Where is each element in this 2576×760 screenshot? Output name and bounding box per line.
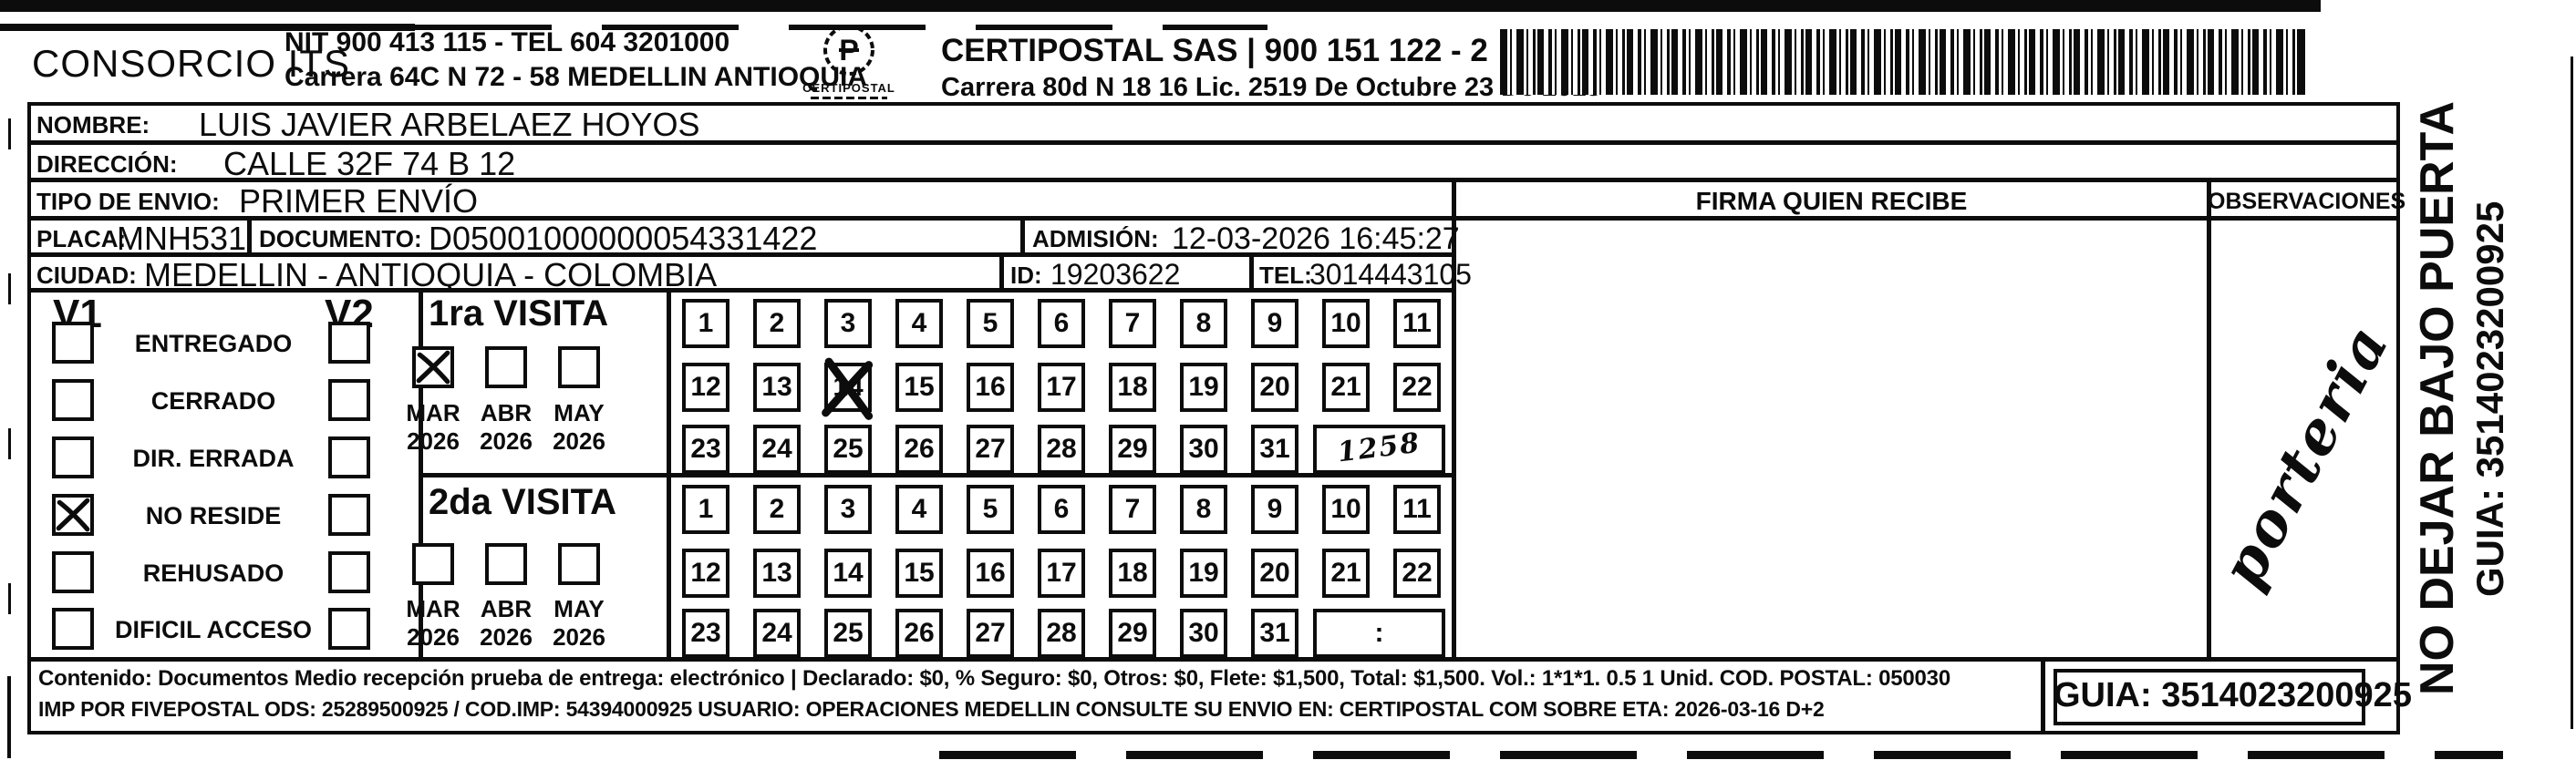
- status-option-label: DIFICIL ACCESO: [102, 616, 325, 644]
- calendar-day-box: 3: [824, 299, 872, 348]
- calendar-day-box: 24: [753, 425, 801, 474]
- visit-year-label: 2026: [396, 427, 471, 456]
- day-number: 20: [1259, 558, 1289, 589]
- day-number: 23: [690, 434, 720, 465]
- day-number: 1: [698, 494, 714, 525]
- calendar-day-box: 27: [967, 425, 1014, 474]
- status-checkbox-v1: [52, 551, 94, 593]
- status-checkbox-v2: [328, 436, 370, 478]
- day-number: 4: [912, 308, 927, 339]
- day-number: 5: [983, 308, 998, 339]
- day-number: 29: [1117, 618, 1147, 649]
- day-number: 11: [1402, 494, 1432, 525]
- day-number: 16: [975, 558, 1005, 589]
- calendar-day-box: 12: [682, 363, 729, 412]
- visit-year-label: 2026: [469, 623, 543, 652]
- day-number: 13: [761, 372, 791, 403]
- day-number: 9: [1267, 308, 1283, 339]
- calendar-day-box: 8: [1180, 485, 1227, 534]
- handwritten-x-icon: [54, 496, 92, 534]
- calendar-day-box: 13: [753, 363, 801, 412]
- day-number: 31: [1259, 434, 1289, 465]
- status-option-label: REHUSADO: [102, 560, 325, 588]
- calendar-day-box: 20: [1251, 363, 1298, 412]
- visit-title: 2da VISITA: [429, 482, 616, 523]
- day-number: 12: [690, 372, 720, 403]
- status-option-label: DIR. ERRADA: [102, 445, 325, 473]
- day-number: 3: [841, 494, 856, 525]
- visit-month-label: MAR: [396, 399, 471, 427]
- calendar-day-box: 16: [967, 549, 1014, 598]
- visit-month-label: ABR: [469, 399, 543, 427]
- day-number: 8: [1196, 494, 1212, 525]
- day-number: 29: [1117, 434, 1147, 465]
- calendar-day-box: 16: [967, 363, 1014, 412]
- day-number: 21: [1330, 558, 1360, 589]
- calendar-day-box: 1: [682, 485, 729, 534]
- day-number: 24: [761, 618, 791, 649]
- calendar-day-box: 29: [1109, 425, 1156, 474]
- visit-title: 1ra VISITA: [429, 293, 608, 334]
- calendar-day-box: 6: [1038, 485, 1085, 534]
- calendar-day-box: 4: [895, 485, 943, 534]
- day-number: 28: [1046, 434, 1076, 465]
- visit-month-label: MAY: [542, 399, 616, 427]
- visit-time-box: 1258: [1313, 425, 1445, 474]
- day-number: 24: [761, 434, 791, 465]
- calendar-day-box: 12: [682, 549, 729, 598]
- visit-month-checkbox: [485, 346, 527, 388]
- visit-month-checkbox: [485, 543, 527, 585]
- day-number: 12: [690, 558, 720, 589]
- day-number: 23: [690, 618, 720, 649]
- day-number: 26: [904, 434, 934, 465]
- status-checkbox-v2: [328, 322, 370, 364]
- visit-month-label: MAY: [542, 595, 616, 623]
- calendar-day-box: 6: [1038, 299, 1085, 348]
- calendar-day-box: 5: [967, 485, 1014, 534]
- calendar-day-box: 28: [1038, 609, 1085, 658]
- day-number: 9: [1267, 494, 1283, 525]
- calendar-day-box: 28: [1038, 425, 1085, 474]
- status-checkbox-v2: [328, 494, 370, 536]
- visit-year-label: 2026: [396, 623, 471, 652]
- day-number: 15: [904, 558, 934, 589]
- calendar-day-box: 11: [1393, 485, 1441, 534]
- handwritten-x-icon: [414, 348, 452, 386]
- day-number: 25: [833, 434, 863, 465]
- status-option-label: CERRADO: [102, 387, 325, 416]
- day-number: 27: [975, 434, 1005, 465]
- status-checkbox-v2: [328, 551, 370, 593]
- day-number: 17: [1046, 558, 1076, 589]
- calendar-day-box: 30: [1180, 609, 1227, 658]
- calendar-day-box: 18: [1109, 363, 1156, 412]
- status-option-label: ENTREGADO: [102, 330, 325, 358]
- day-number: 17: [1046, 372, 1076, 403]
- day-number: 28: [1046, 618, 1076, 649]
- day-number: 6: [1054, 494, 1070, 525]
- status-checkbox-v2: [328, 379, 370, 421]
- status-checkbox-v1: [52, 436, 94, 478]
- calendar-day-box: 3: [824, 485, 872, 534]
- day-number: 6: [1054, 308, 1070, 339]
- visit-year-label: 2026: [469, 427, 543, 456]
- calendar-day-box: 18: [1109, 549, 1156, 598]
- calendar-day-box: 13: [753, 549, 801, 598]
- calendar-day-box: 7: [1109, 299, 1156, 348]
- calendar-day-box: 15: [895, 549, 943, 598]
- day-number: 26: [904, 618, 934, 649]
- calendar-day-box: 26: [895, 609, 943, 658]
- day-number: 3: [841, 308, 856, 339]
- day-number: 22: [1402, 558, 1432, 589]
- visit-month-checkbox: [558, 543, 600, 585]
- visit-time-box: :: [1313, 609, 1445, 658]
- visit-month-checkbox: [412, 543, 454, 585]
- calendar-day-box: 10: [1322, 299, 1370, 348]
- visit-month-checkbox: [558, 346, 600, 388]
- status-checkbox-v2: [328, 608, 370, 650]
- calendar-day-box: 21: [1322, 363, 1370, 412]
- day-number: 18: [1117, 558, 1147, 589]
- day-number: 30: [1188, 618, 1218, 649]
- calendar-day-box: 25: [824, 609, 872, 658]
- day-number: 8: [1196, 308, 1212, 339]
- calendar-day-box: 14: [824, 549, 872, 598]
- day-number: 4: [912, 494, 927, 525]
- calendar-day-box: 19: [1180, 363, 1227, 412]
- day-number: 18: [1117, 372, 1147, 403]
- day-number: 31: [1259, 618, 1289, 649]
- calendar-day-box: 22: [1393, 363, 1441, 412]
- calendar-day-box: 19: [1180, 549, 1227, 598]
- visit-year-label: 2026: [542, 427, 616, 456]
- status-checkbox-v1: [52, 608, 94, 650]
- calendar-day-box: 23: [682, 425, 729, 474]
- day-number: 7: [1125, 494, 1141, 525]
- calendar-day-box: 24: [753, 609, 801, 658]
- day-number: 2: [770, 494, 785, 525]
- day-number: 30: [1188, 434, 1218, 465]
- day-number: 25: [833, 618, 863, 649]
- calendar-day-box: 4: [895, 299, 943, 348]
- day-number: 7: [1125, 308, 1141, 339]
- day-number: 11: [1402, 308, 1432, 339]
- day-number: 19: [1188, 558, 1218, 589]
- day-number: 19: [1188, 372, 1218, 403]
- day-number: 5: [983, 494, 998, 525]
- visit-year-label: 2026: [542, 623, 616, 652]
- day-number: 21: [1330, 372, 1360, 403]
- day-number: 2: [770, 308, 785, 339]
- calendar-day-box: 15: [895, 363, 943, 412]
- calendar-day-box: 27: [967, 609, 1014, 658]
- handwritten-x-day-cross: [816, 355, 880, 419]
- day-number: 10: [1330, 494, 1360, 525]
- calendar-day-box: 23: [682, 609, 729, 658]
- day-number: 15: [904, 372, 934, 403]
- calendar-day-box: 17: [1038, 363, 1085, 412]
- visit-month-checkbox: [412, 346, 454, 388]
- calendar-day-box: 30: [1180, 425, 1227, 474]
- calendar-day-box: 2: [753, 299, 801, 348]
- handwritten-time: 1258: [1336, 426, 1422, 468]
- day-number: 20: [1259, 372, 1289, 403]
- status-option-label: NO RESIDE: [102, 502, 325, 530]
- calendar-day-box: 25: [824, 425, 872, 474]
- day-number: 14: [833, 558, 863, 589]
- day-number: 13: [761, 558, 791, 589]
- day-number: 27: [975, 618, 1005, 649]
- calendar-day-box: 22: [1393, 549, 1441, 598]
- day-number: 22: [1402, 372, 1432, 403]
- calendar-day-box: 31: [1251, 609, 1298, 658]
- visit-month-label: ABR: [469, 595, 543, 623]
- calendar-day-box: 9: [1251, 485, 1298, 534]
- scanned-delivery-form: CONSORCIO ITS NIT 900 413 115 - TEL 604 …: [0, 0, 2576, 760]
- visit-month-label: MAR: [396, 595, 471, 623]
- calendar-day-box: 8: [1180, 299, 1227, 348]
- calendar-day-box: 17: [1038, 549, 1085, 598]
- status-checkbox-v1: [52, 379, 94, 421]
- status-checkbox-v1: [52, 494, 94, 536]
- calendar-day-box: 20: [1251, 549, 1298, 598]
- day-number: 10: [1330, 308, 1360, 339]
- calendar-day-box: 21: [1322, 549, 1370, 598]
- calendar-day-box: 31: [1251, 425, 1298, 474]
- calendar-day-box: 1: [682, 299, 729, 348]
- calendar-day-box: 26: [895, 425, 943, 474]
- calendar-day-box: 2: [753, 485, 801, 534]
- calendar-day-box: 5: [967, 299, 1014, 348]
- time-colon-placeholder: :: [1375, 618, 1384, 649]
- day-number: 16: [975, 372, 1005, 403]
- calendar-day-box: 11: [1393, 299, 1441, 348]
- day-number: 1: [698, 308, 714, 339]
- handwritten-x-icon: [816, 355, 880, 419]
- status-checkbox-v1: [52, 322, 94, 364]
- calendar-day-box: 9: [1251, 299, 1298, 348]
- calendar-day-box: 29: [1109, 609, 1156, 658]
- calendar-day-box: 10: [1322, 485, 1370, 534]
- calendar-day-box: 7: [1109, 485, 1156, 534]
